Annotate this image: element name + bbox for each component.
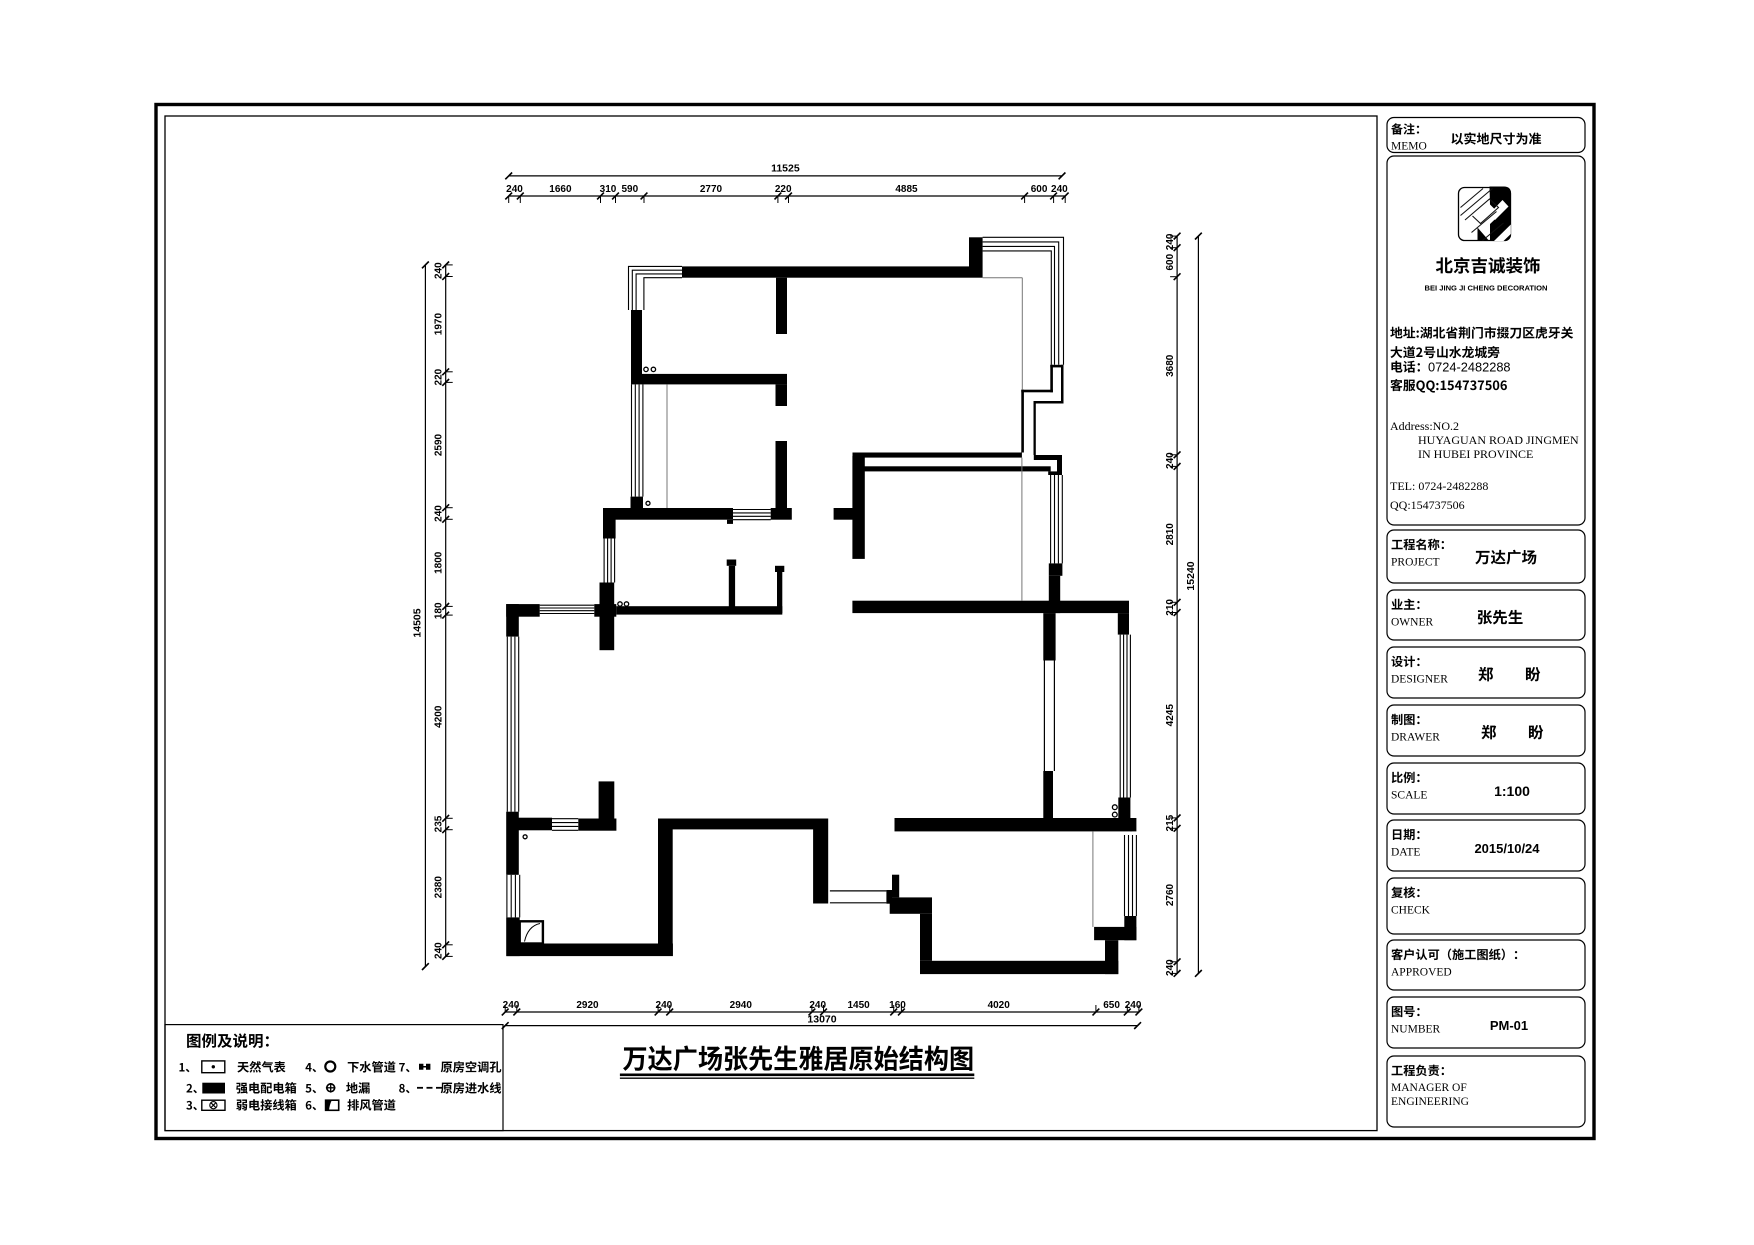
svg-text:1660: 1660: [549, 184, 572, 195]
svg-text:180: 180: [434, 602, 445, 619]
svg-text:1970: 1970: [434, 313, 445, 336]
svg-text:14505: 14505: [412, 608, 424, 637]
svg-text:240: 240: [503, 1000, 520, 1011]
svg-text:240: 240: [809, 1000, 826, 1011]
svg-text:2770: 2770: [700, 184, 723, 195]
svg-text:IN HUBEI PROVINCE: IN HUBEI PROVINCE: [1418, 447, 1533, 461]
svg-text:0724-2482288: 0724-2482288: [1428, 360, 1511, 375]
svg-text:2590: 2590: [434, 433, 445, 456]
svg-text:13070: 13070: [807, 1014, 836, 1026]
svg-text:DRAWER: DRAWER: [1391, 732, 1440, 744]
svg-text:240: 240: [1125, 1000, 1142, 1011]
svg-text:SCALE: SCALE: [1391, 790, 1427, 802]
svg-text:15240: 15240: [1185, 561, 1197, 590]
svg-text:650: 650: [1103, 1000, 1120, 1011]
svg-text:4885: 4885: [895, 184, 918, 195]
svg-text:NUMBER: NUMBER: [1391, 1024, 1441, 1036]
svg-text:CHECK: CHECK: [1391, 905, 1431, 917]
svg-text:210: 210: [1165, 599, 1176, 616]
svg-text:240: 240: [506, 184, 523, 195]
svg-text:215: 215: [1165, 814, 1176, 831]
svg-text:PM-01: PM-01: [1490, 1018, 1528, 1033]
svg-text:590: 590: [621, 184, 638, 195]
svg-text:600: 600: [1031, 184, 1048, 195]
svg-text:BEI JING JI CHENG DECORATION: BEI JING JI CHENG DECORATION: [1424, 284, 1547, 293]
svg-text:MEMO: MEMO: [1391, 141, 1427, 153]
svg-text:1800: 1800: [434, 551, 445, 574]
svg-text:2920: 2920: [576, 1000, 599, 1011]
svg-text:QQ:154737506: QQ:154737506: [1390, 498, 1465, 512]
svg-text:4245: 4245: [1165, 704, 1176, 727]
svg-text:APPROVED: APPROVED: [1391, 967, 1452, 979]
svg-text:4020: 4020: [988, 1000, 1011, 1011]
svg-text:Address:NO.2: Address:NO.2: [1390, 419, 1459, 433]
svg-text:240: 240: [434, 505, 445, 522]
svg-text:240: 240: [656, 1000, 673, 1011]
svg-text:2380: 2380: [434, 876, 445, 899]
svg-text:4200: 4200: [434, 705, 445, 728]
svg-text:235: 235: [434, 815, 445, 832]
svg-text:160: 160: [889, 1000, 906, 1011]
svg-text:600: 600: [1165, 253, 1176, 270]
svg-text:DESIGNER: DESIGNER: [1391, 674, 1448, 686]
svg-text:2015/10/24: 2015/10/24: [1474, 841, 1540, 856]
svg-text:PROJECT: PROJECT: [1391, 557, 1440, 569]
svg-text:1450: 1450: [847, 1000, 870, 1011]
svg-text:240: 240: [1165, 233, 1176, 250]
svg-text:240: 240: [434, 262, 445, 279]
svg-text:220: 220: [434, 368, 445, 385]
svg-text:HUYAGUAN ROAD JINGMEN: HUYAGUAN ROAD JINGMEN: [1418, 433, 1579, 447]
svg-text:MANAGER OF: MANAGER OF: [1391, 1082, 1467, 1094]
svg-text:OWNER: OWNER: [1391, 617, 1433, 629]
svg-text:310: 310: [600, 184, 617, 195]
svg-text:2810: 2810: [1165, 523, 1176, 546]
svg-text:220: 220: [775, 184, 792, 195]
svg-text:240: 240: [434, 942, 445, 959]
svg-text:TEL: 0724-2482288: TEL: 0724-2482288: [1390, 479, 1488, 493]
svg-text:1:100: 1:100: [1494, 783, 1530, 799]
svg-text:240: 240: [1165, 959, 1176, 976]
svg-text:2940: 2940: [730, 1000, 753, 1011]
svg-text:240: 240: [1165, 452, 1176, 469]
svg-text:11525: 11525: [771, 163, 800, 175]
svg-text:2760: 2760: [1165, 883, 1176, 906]
svg-text:240: 240: [1051, 184, 1068, 195]
svg-text:3680: 3680: [1165, 354, 1176, 377]
svg-text:ENGINEERING: ENGINEERING: [1391, 1096, 1469, 1108]
svg-text:DATE: DATE: [1391, 847, 1420, 859]
